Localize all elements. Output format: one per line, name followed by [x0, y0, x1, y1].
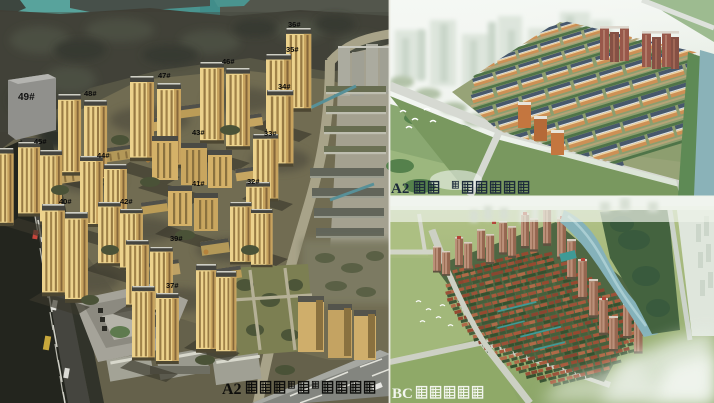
svg-text:A2: A2 [222, 381, 242, 398]
svg-text:37#: 37# [166, 281, 179, 290]
svg-text:41#: 41# [192, 179, 205, 188]
svg-text:48#: 48# [84, 89, 97, 98]
svg-text:47#: 47# [158, 71, 171, 80]
svg-text:39#: 39# [170, 234, 183, 243]
svg-text:BC: BC [392, 386, 413, 402]
svg-text:40#: 40# [59, 197, 72, 206]
svg-text:44#: 44# [97, 151, 110, 160]
svg-text:A2: A2 [391, 181, 409, 197]
svg-text:46#: 46# [222, 57, 235, 66]
svg-text:32#: 32# [247, 177, 260, 186]
svg-text:49#: 49# [18, 92, 35, 103]
svg-text:34#: 34# [278, 82, 291, 91]
svg-text:35#: 35# [286, 45, 299, 54]
svg-text:33#: 33# [264, 129, 277, 138]
svg-text:43#: 43# [192, 128, 205, 137]
svg-text:42#: 42# [120, 197, 133, 206]
svg-text:36#: 36# [288, 20, 301, 29]
svg-text:45#: 45# [34, 137, 47, 146]
